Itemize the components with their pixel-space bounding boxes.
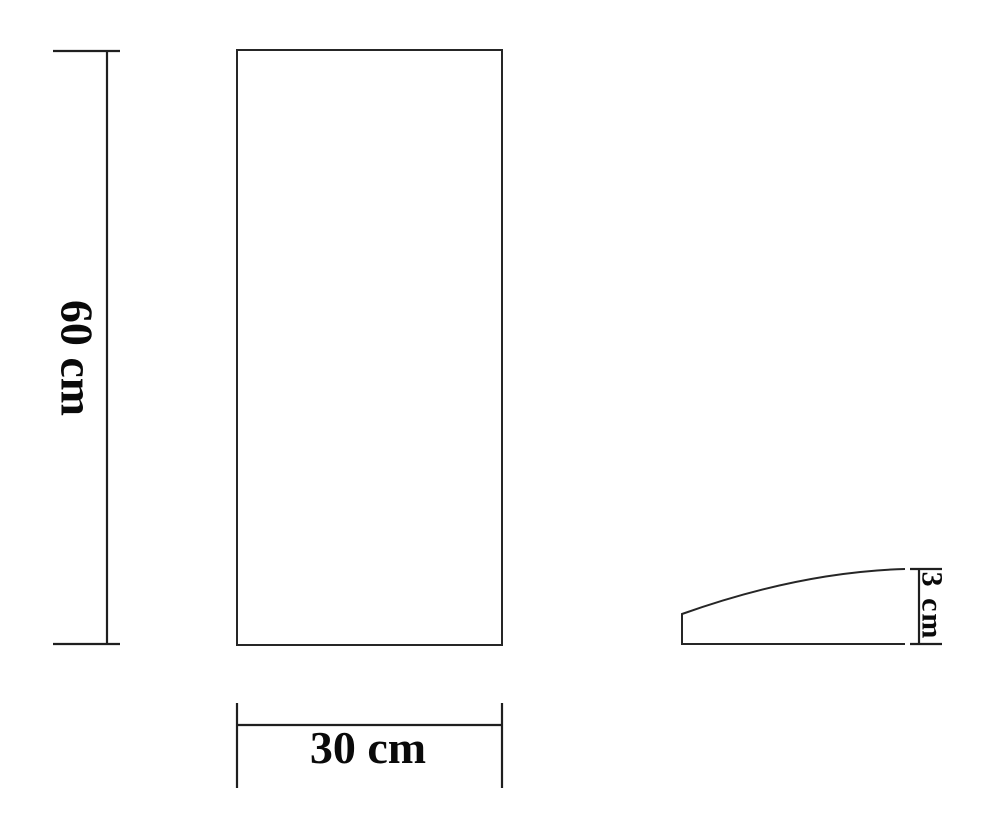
front-view — [237, 50, 502, 645]
side-view-profile — [682, 569, 905, 644]
height-dimension-label: 60 cm — [52, 300, 103, 416]
side-view — [682, 569, 905, 644]
thickness-dimension-label: 3 cm — [916, 572, 949, 641]
thickness-dimension: 3 cm — [910, 569, 949, 644]
drawing-canvas: 60 cm 30 cm 3 cm — [0, 0, 1000, 829]
width-dimension: 30 cm — [237, 703, 502, 788]
technical-drawing-svg: 60 cm 30 cm 3 cm — [0, 0, 1000, 829]
height-dimension: 60 cm — [52, 51, 121, 644]
front-view-rectangle — [237, 50, 502, 645]
width-dimension-label: 30 cm — [310, 722, 426, 773]
